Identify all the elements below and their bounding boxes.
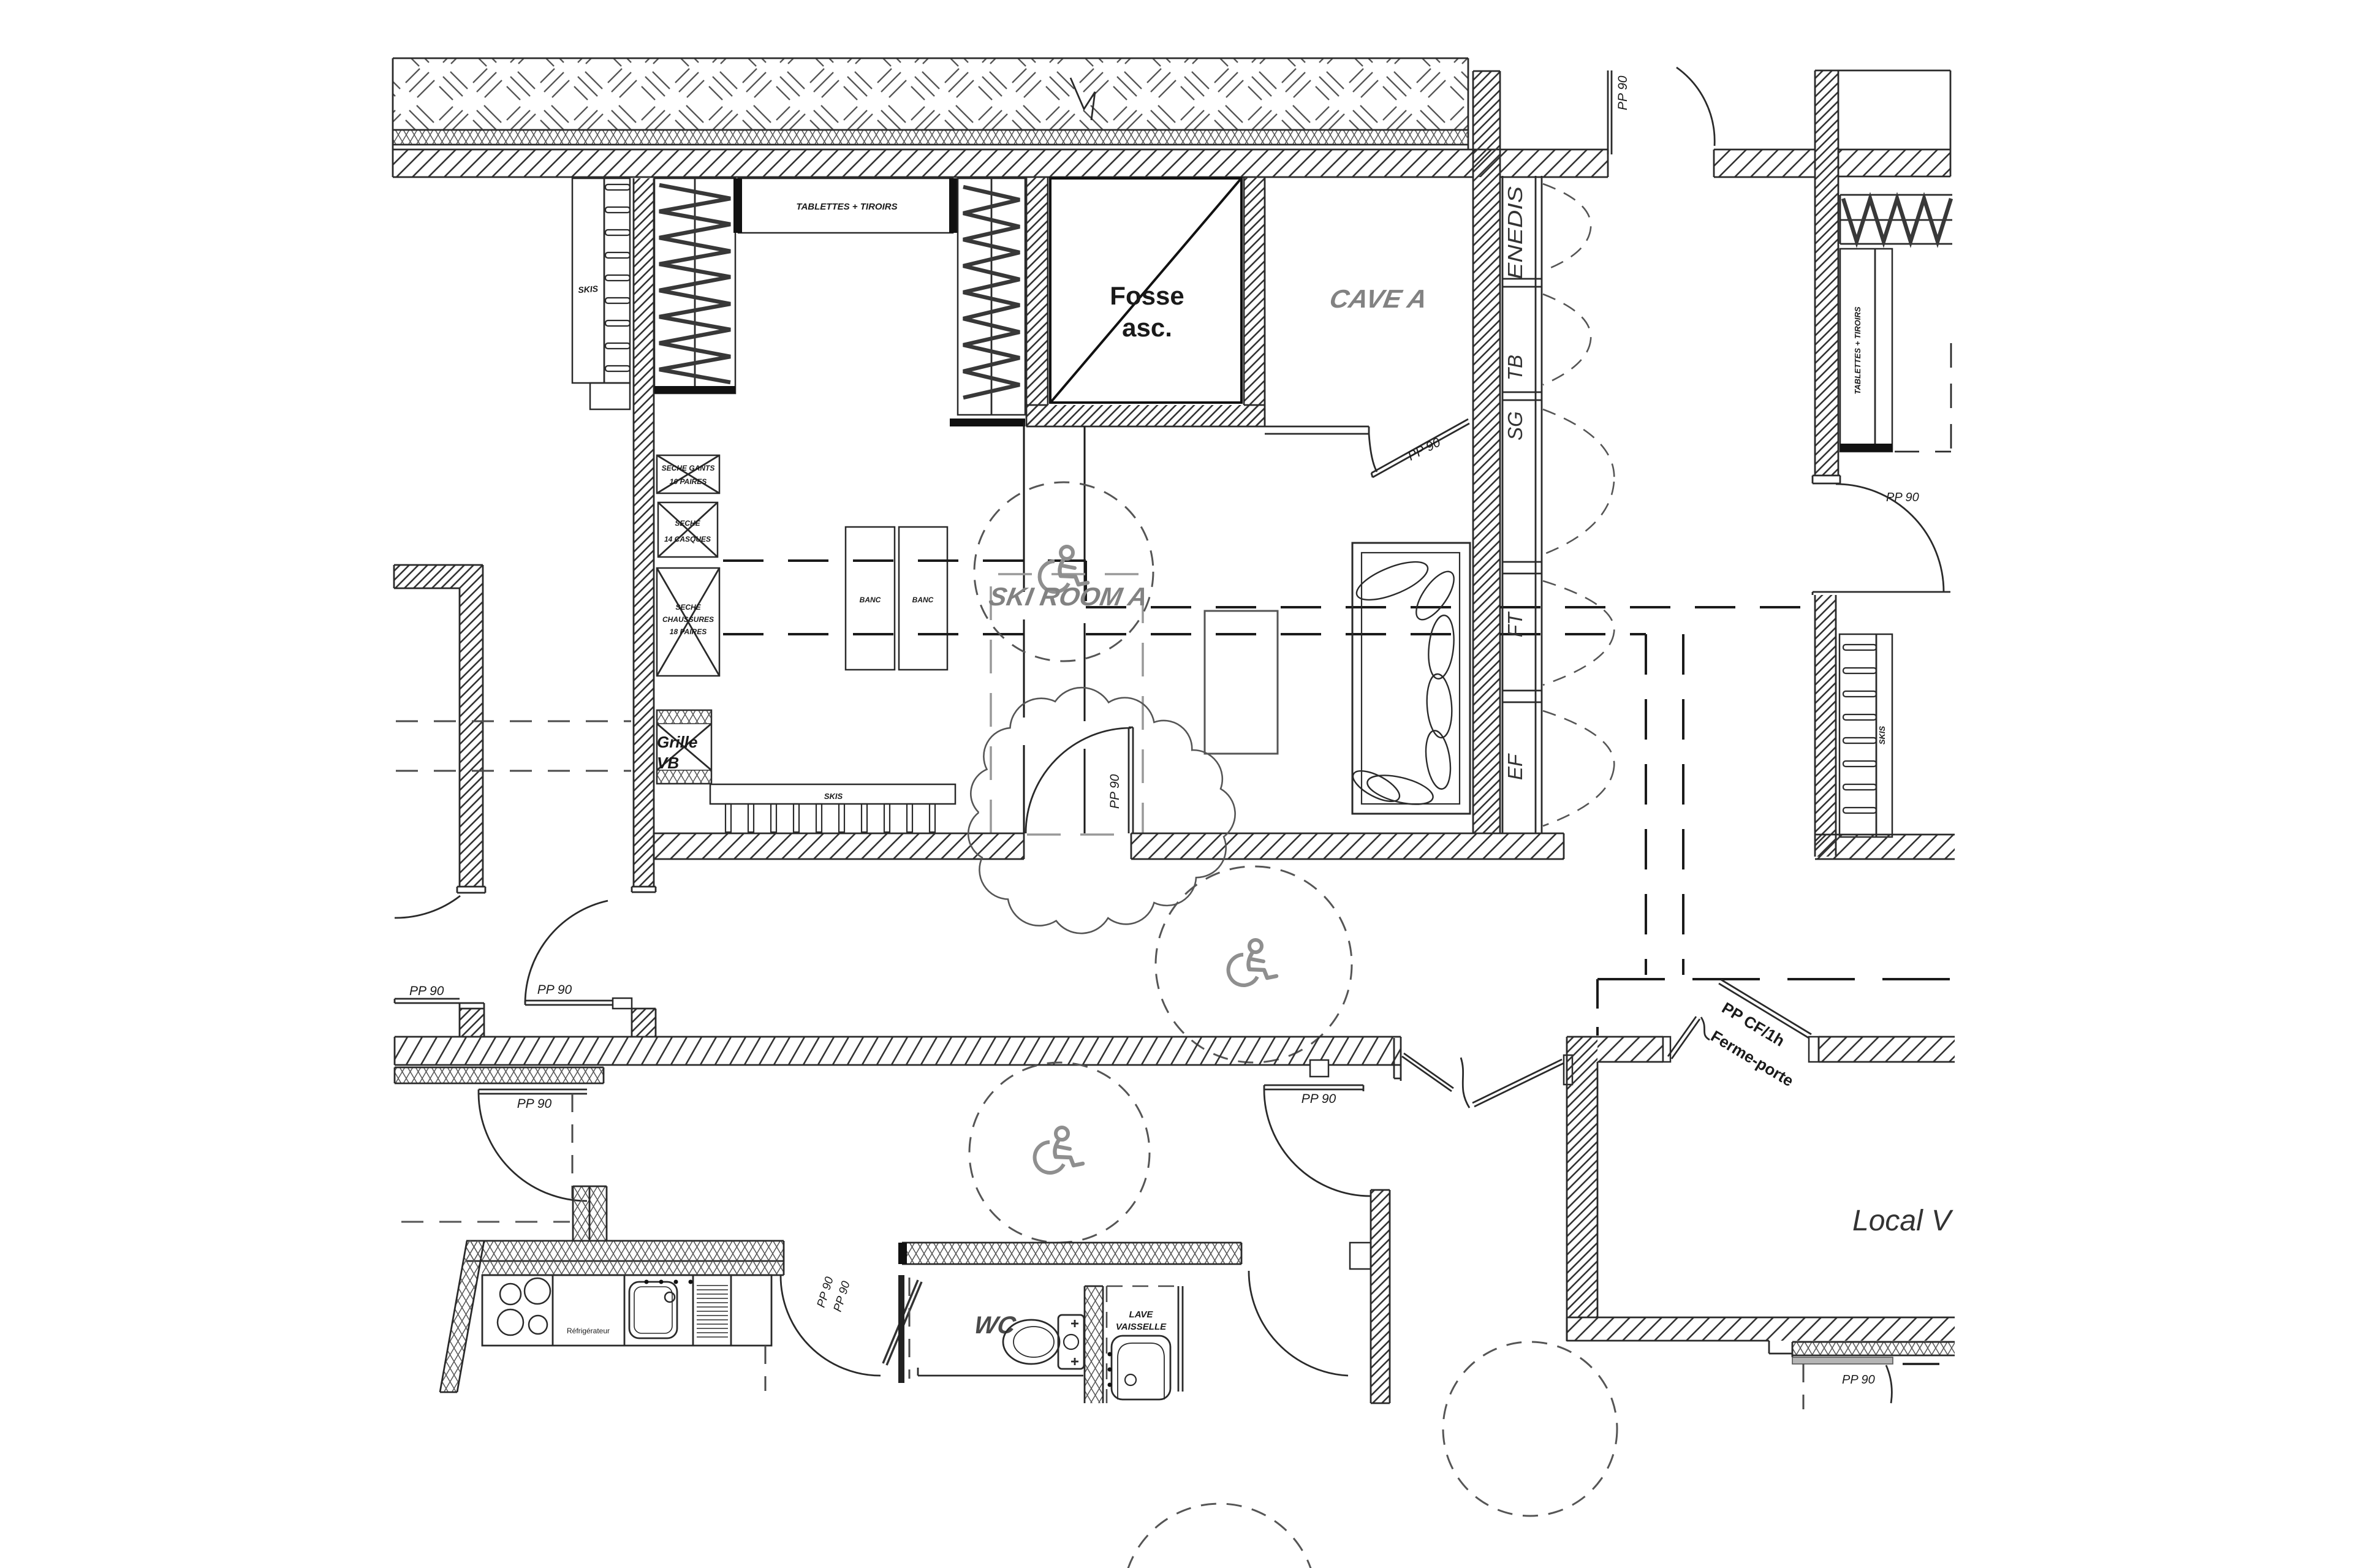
svg-text:SG: SG [1504, 411, 1526, 441]
svg-text:CHAUSSURES: CHAUSSURES [662, 615, 714, 624]
svg-text:TABLETTES + TIROIRS: TABLETTES + TIROIRS [1853, 306, 1862, 394]
svg-text:SECHE GANTS: SECHE GANTS [662, 464, 715, 472]
svg-text:TB: TB [1504, 355, 1526, 381]
svg-text:asc.: asc. [1122, 313, 1172, 342]
svg-text:BANC: BANC [860, 596, 881, 604]
svg-text:PP 90: PP 90 [517, 1097, 552, 1111]
svg-text:Grille: Grille [657, 733, 697, 751]
svg-text:EF: EF [1504, 753, 1526, 780]
svg-text:SKI ROOM A: SKI ROOM A [987, 582, 1150, 611]
svg-text:SECHE: SECHE [675, 603, 701, 612]
svg-text:PP 90: PP 90 [1886, 491, 1919, 504]
svg-text:SKIS: SKIS [578, 284, 599, 295]
svg-text:SECHE: SECHE [675, 519, 700, 528]
svg-text:Local: Local [1852, 1205, 1923, 1237]
svg-text:VB: VB [657, 754, 679, 772]
svg-text:LAVE: LAVE [1129, 1309, 1154, 1320]
svg-text:SKIS: SKIS [824, 792, 843, 801]
svg-text:PP 90: PP 90 [1108, 774, 1122, 809]
svg-text:TABLETTES + TIROIRS: TABLETTES + TIROIRS [796, 202, 897, 212]
svg-text:PP 90: PP 90 [1616, 75, 1630, 110]
svg-text:18 PAIRES: 18 PAIRES [670, 627, 707, 636]
svg-text:FT: FT [1504, 611, 1526, 637]
svg-text:10 PAIRES: 10 PAIRES [670, 477, 707, 486]
svg-text:V: V [1931, 1205, 1953, 1237]
svg-text:CAVE A: CAVE A [1327, 284, 1429, 313]
svg-text:14 CASQUES: 14 CASQUES [664, 535, 711, 543]
svg-text:Réfrigérateur: Réfrigérateur [567, 1327, 610, 1335]
svg-text:Fosse: Fosse [1110, 281, 1184, 310]
svg-text:BANC: BANC [912, 596, 934, 604]
svg-text:VAISSELLE: VAISSELLE [1116, 1322, 1167, 1332]
svg-text:PP 90: PP 90 [537, 983, 572, 997]
svg-text:PP 90: PP 90 [1302, 1092, 1336, 1106]
svg-text:ENEDIS: ENEDIS [1504, 186, 1526, 279]
svg-text:SKIS: SKIS [1877, 726, 1887, 745]
svg-text:PP 90: PP 90 [409, 984, 444, 998]
svg-text:WC: WC [972, 1311, 1018, 1339]
svg-text:PP 90: PP 90 [1842, 1373, 1875, 1387]
